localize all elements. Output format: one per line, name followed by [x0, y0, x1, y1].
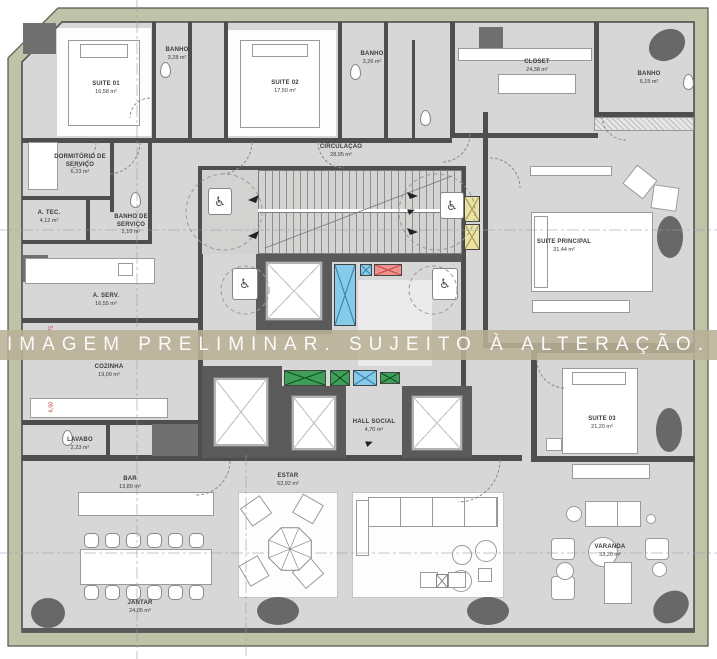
room-area: 4,70 m²	[353, 426, 395, 433]
room-label-a-serv: A. SERV.16,55 m²	[93, 293, 120, 307]
room-label-banho1: BANHO3,28 m²	[166, 47, 189, 61]
room-name: SUITE PRINCIPAL	[537, 239, 591, 245]
room-name: BAR	[123, 476, 137, 482]
room-area: 24,38 m²	[524, 66, 550, 73]
room-name: CLOSET	[524, 59, 550, 65]
room-area: 3,28 m²	[166, 54, 189, 61]
room-label-bar: BAR13,89 m²	[119, 476, 141, 490]
room-area: 6,15 m²	[638, 78, 661, 85]
room-name: BANHO	[361, 51, 384, 57]
room-name: BANHO	[166, 47, 189, 53]
room-label-a-tec: A. TEC.4,12 m²	[38, 210, 61, 224]
watermark-band: IMAGEM PRELIMINAR. SUJEITO À ALTERAÇÃO.	[0, 330, 717, 360]
room-label-estar: ESTAR62,92 m²	[277, 473, 299, 487]
room-area: 2,10 m²	[102, 229, 160, 236]
room-area: 33,20 m²	[595, 551, 626, 558]
floor-plan: ♿ ♿ ♿ ♿	[0, 0, 717, 659]
room-label-suite03: SUITE 0321,20 m²	[588, 416, 616, 430]
room-label-suite02: SUITE 0217,50 m²	[271, 80, 299, 94]
room-label-dormitorio-servico: DORMITÓRIO DE SERVIÇO6,23 m²	[51, 154, 109, 176]
turning-circles	[186, 174, 475, 314]
room-label-banho-servico: BANHO DE SERVIÇO2,10 m²	[102, 214, 160, 236]
room-name: COZINHA	[95, 364, 124, 370]
room-area: 16,55 m²	[93, 300, 120, 307]
octagon-table	[269, 528, 312, 571]
room-label-banho-master: BANHO6,15 m²	[638, 71, 661, 85]
room-label-banho2: BANHO3,26 m²	[361, 51, 384, 65]
room-name: BANHO DE SERVIÇO	[114, 214, 148, 228]
room-area: 2,23 m²	[67, 444, 93, 451]
room-name: A. SERV.	[93, 293, 120, 299]
room-label-jantar: JANTAR24,05 m²	[127, 600, 152, 614]
room-name: SUITE 01	[92, 81, 120, 87]
room-label-circulacao: CIRCULAÇÃO28,95 m²	[320, 144, 362, 158]
room-label-cozinha: COZINHA19,09 m²	[95, 364, 124, 378]
room-area: 17,50 m²	[271, 87, 299, 94]
room-name: LAVABO	[67, 437, 93, 443]
room-name: CIRCULAÇÃO	[320, 144, 362, 150]
room-area: 24,05 m²	[127, 607, 152, 614]
room-name: JANTAR	[127, 600, 152, 606]
room-area: 6,23 m²	[51, 169, 109, 176]
room-area: 31,44 m²	[537, 246, 591, 253]
room-name: A. TEC.	[38, 210, 61, 216]
room-name: VARANDA	[595, 544, 626, 550]
room-name: BANHO	[638, 71, 661, 77]
room-area: 28,95 m²	[320, 151, 362, 158]
room-name: SUITE 03	[588, 416, 616, 422]
room-label-varanda: VARANDA33,20 m²	[595, 544, 626, 558]
room-area: 62,92 m²	[277, 480, 299, 487]
door-swings	[70, 98, 626, 502]
room-area: 4,12 m²	[38, 217, 61, 224]
room-name: DORMITÓRIO DE SERVIÇO	[54, 154, 106, 168]
watermark-text: IMAGEM PRELIMINAR. SUJEITO À ALTERAÇÃO.	[7, 334, 710, 356]
room-name: HALL SOCIAL	[353, 419, 395, 425]
room-label-hall-social: HALL SOCIAL4,70 m²	[353, 419, 395, 433]
stair-direction	[248, 176, 452, 248]
room-area: 3,26 m²	[361, 58, 384, 65]
room-label-suite-principal: SUITE PRINCIPAL31,44 m²	[537, 239, 591, 253]
room-name: ESTAR	[278, 473, 299, 479]
room-label-lavabo: LAVABO2,23 m²	[67, 437, 93, 451]
room-area: 16,58 m²	[92, 88, 120, 95]
room-area: 13,89 m²	[119, 483, 141, 490]
room-area: 21,20 m²	[588, 423, 616, 430]
room-area: 19,09 m²	[95, 371, 124, 378]
room-label-closet: CLOSET24,38 m²	[524, 59, 550, 73]
room-name: SUITE 02	[271, 80, 299, 86]
room-label-suite01: SUITE 0116,58 m²	[92, 81, 120, 95]
